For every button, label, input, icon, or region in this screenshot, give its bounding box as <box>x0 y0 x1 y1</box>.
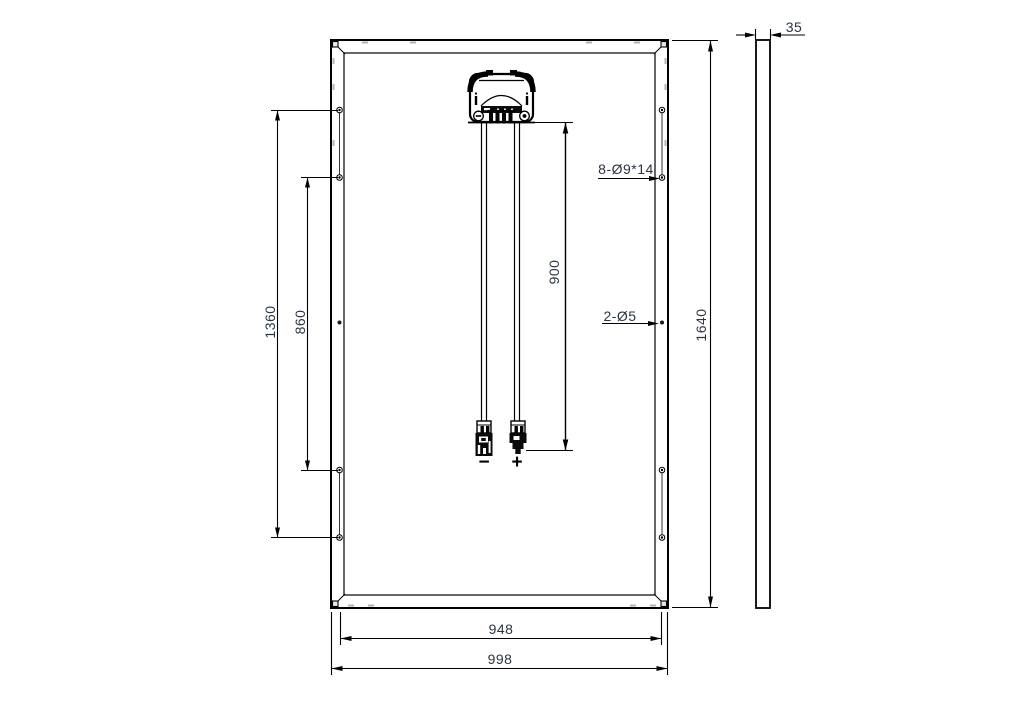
annotation-grounding-hole-spec: 2-Ø5 <box>603 308 636 324</box>
dim-label-hole-pitch-long: 1360 <box>262 305 278 338</box>
dim-label-hole-pitch-short: 860 <box>292 310 308 335</box>
dimension-lines <box>271 41 718 676</box>
solar-panel-technical-drawing: 1360 860 900 1640 948 998 35 8-Ø9*14 2-Ø… <box>0 0 1020 702</box>
dimension-900 <box>526 123 573 451</box>
dim-label-overall-width: 998 <box>488 651 513 667</box>
drawing-linework <box>0 0 1020 702</box>
dim-label-mounting-width: 948 <box>489 621 514 637</box>
panel-side-view <box>736 29 805 608</box>
mc4-connector-negative-icon <box>476 421 493 456</box>
annotation-mounting-hole-spec: 8-Ø9*14 <box>598 161 654 177</box>
dim-label-cable-length: 900 <box>546 260 562 285</box>
dim-label-thickness: 35 <box>786 19 803 35</box>
junction-box-icon <box>468 70 535 124</box>
dim-label-overall-height: 1640 <box>693 308 709 341</box>
output-cables <box>482 123 520 421</box>
mc4-connector-positive-icon <box>510 421 527 454</box>
side-profile <box>756 40 770 608</box>
negative-terminal-label: − <box>478 452 489 474</box>
positive-terminal-label: + <box>511 452 522 474</box>
